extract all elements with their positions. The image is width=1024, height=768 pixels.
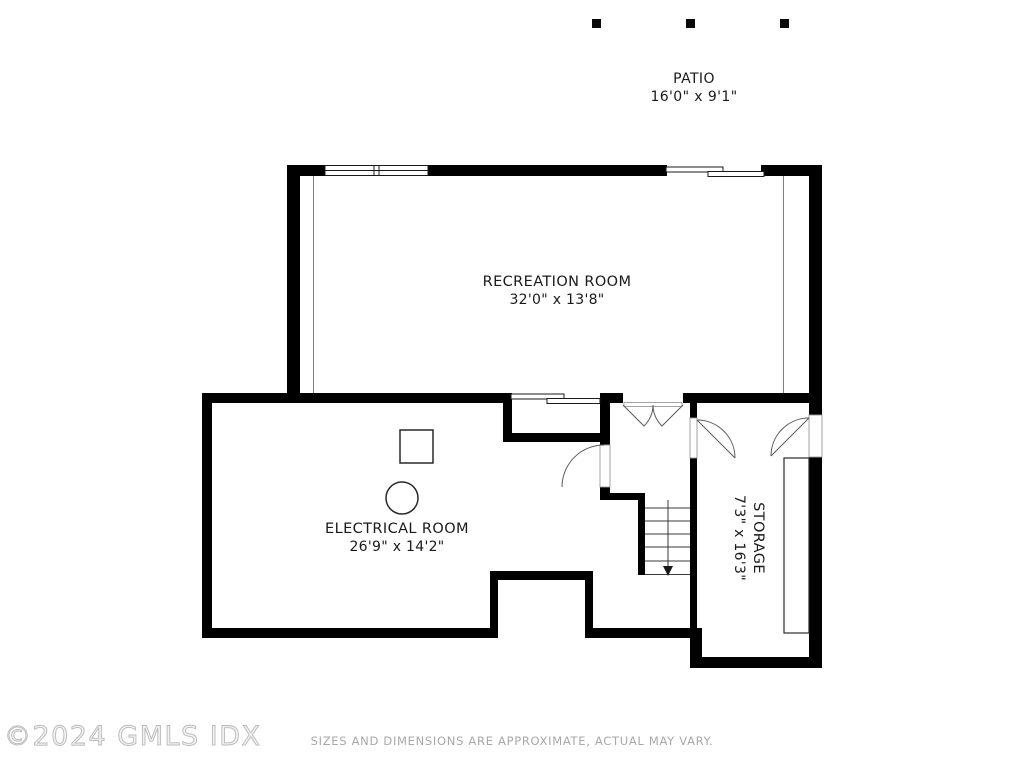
room-dims: 7'3" x 16'3"	[731, 495, 747, 581]
wall-segment	[202, 393, 512, 403]
wall-segment	[690, 657, 822, 668]
room-name: ELECTRICAL ROOM	[325, 521, 469, 537]
wall-segment	[490, 571, 593, 580]
floor-plan-drawing: PATIO 16'0" x 9'1"	[0, 0, 1024, 768]
staircase	[645, 500, 690, 576]
equipment-square-icon	[400, 430, 433, 463]
wall-segment	[426, 165, 667, 176]
storage-room-label: STORAGE 7'3" x 16'3"	[731, 495, 766, 581]
door-icon	[690, 418, 735, 458]
sliding-door-icon	[666, 167, 764, 177]
room-dims: 26'9" x 14'2"	[349, 539, 444, 555]
patio-post-icon	[592, 19, 601, 28]
wall-segment	[287, 165, 300, 403]
wall-segment	[683, 393, 822, 403]
patio-post-icon	[780, 19, 789, 28]
wall-segment	[690, 403, 697, 418]
copyright-watermark: ©2024 GMLS IDX	[4, 721, 262, 752]
patio-area: PATIO 16'0" x 9'1"	[592, 19, 789, 105]
wall-segment	[809, 457, 822, 668]
room-name: STORAGE	[750, 502, 766, 574]
storage-shelf-icon	[784, 458, 809, 633]
patio-name: PATIO	[673, 71, 715, 87]
french-doors-icon	[623, 403, 683, 427]
electrical-room-label: ELECTRICAL ROOM 26'9" x 14'2"	[325, 521, 469, 555]
wall-segment	[202, 628, 498, 638]
wall-segment	[600, 393, 623, 403]
room-name: RECREATION ROOM	[483, 274, 632, 290]
door-icon	[771, 415, 822, 457]
patio-post-icon	[686, 19, 695, 28]
wall-segment	[600, 403, 610, 445]
door-icon	[562, 445, 610, 487]
disclaimer-text: SIZES AND DIMENSIONS ARE APPROXIMATE, AC…	[311, 734, 714, 748]
equipment-circle-icon	[386, 482, 418, 514]
wall-segment	[503, 433, 607, 442]
room-dims: 32'0" x 13'8"	[509, 292, 604, 308]
patio-dims: 16'0" x 9'1"	[650, 89, 737, 105]
wall-segment	[585, 571, 593, 638]
sliding-door-icon	[511, 394, 600, 404]
wall-segment	[490, 571, 498, 638]
double-window-icon	[325, 166, 428, 176]
wall-segment	[690, 458, 697, 630]
wall-segment	[585, 628, 702, 638]
floor-plan-page: PATIO 16'0" x 9'1"	[0, 0, 1024, 768]
recreation-room-label: RECREATION ROOM 32'0" x 13'8"	[483, 274, 632, 308]
wall-segment	[638, 494, 645, 575]
wall-segment	[202, 393, 212, 638]
wall-segment	[809, 165, 822, 415]
walls	[202, 165, 822, 668]
